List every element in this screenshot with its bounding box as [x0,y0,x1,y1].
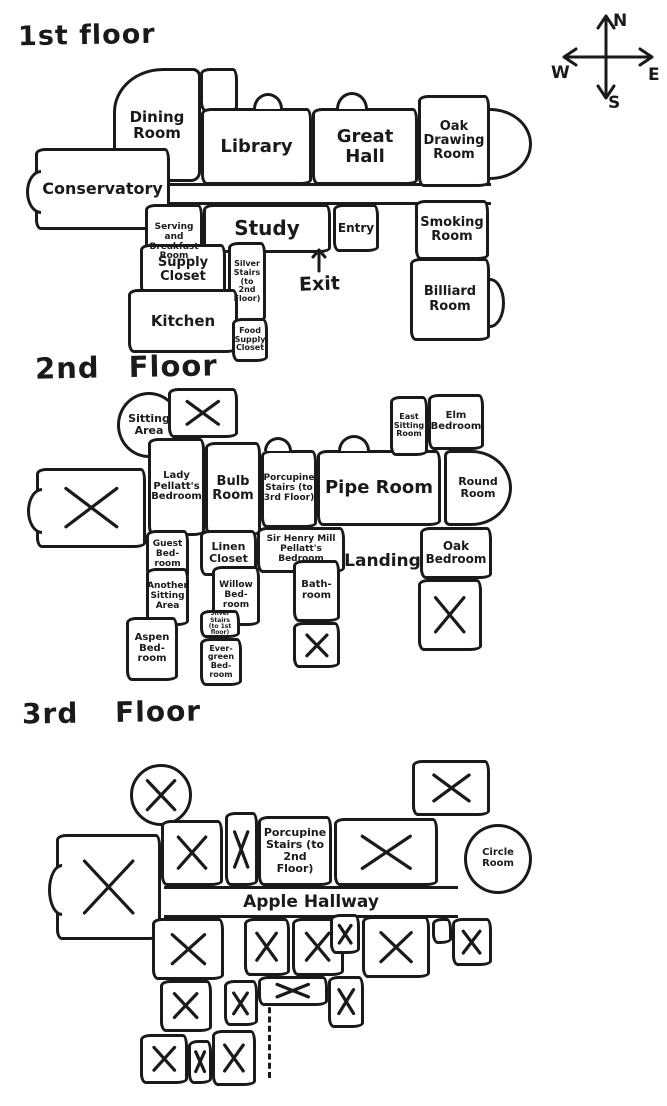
crossed-out-x-mark [302,928,333,965]
room-label: Lady Pellatt's Bedroom [149,470,204,504]
bay-window [27,488,42,534]
room-label: Elm Bedroom [429,410,484,434]
crossed-out-x-mark [194,1048,206,1075]
compass-rose-icon: N E S W [550,8,665,110]
room-unlabeled [188,1040,212,1084]
crossed-out-x-mark [353,830,420,875]
room-label: Smoking Room [418,215,486,245]
compass-east-label: E [648,65,660,85]
room-label: Sitting Area [120,412,178,438]
crossed-out-x-mark [303,631,331,660]
room-smoking-room: Smoking Room [415,200,489,260]
bay-window [48,864,62,916]
room-label: Entry [336,221,376,236]
compass-north-label: N [613,11,627,31]
room-unlabeled [328,976,364,1028]
room-unlabeled [161,820,223,886]
room-label: Billiard Room [413,284,487,314]
room-unlabeled [362,916,430,978]
room-label: Aspen Bed-room [129,632,175,666]
exit-note: Exit [294,247,344,295]
crossed-out-x-mark [75,851,142,923]
room-label: Conservatory [40,179,165,198]
room-oak-drawing-room: Oak Drawing Room [418,95,490,187]
room-label: Pipe Room [323,477,435,498]
room-unlabeled [412,760,490,816]
room-porcupine-stairs-to-2nd-floor: Porcupine Stairs (to 2nd Floor) [258,816,332,886]
room-aspen-bed-room: Aspen Bed-room [126,617,178,681]
room-label: Oak Bedroom [423,539,489,567]
room-label: Supply Closet [143,255,223,285]
room-oak-bedroom: Oak Bedroom [420,527,492,579]
room-unlabeled [200,68,238,112]
room-label: Sir Henry Mill Pellatt's Bedroom [260,534,342,565]
room-ever-green-bed-room: Ever-green Bed-room [200,638,242,686]
room-bulb-room: Bulb Room [205,442,261,536]
room-label: Linen Closet [203,540,254,566]
dashed-wall [268,998,271,1078]
room-food-supply-closet: Food Supply Closet [232,318,268,362]
floor-title-1st: 1st floor [18,19,156,52]
crossed-out-x-mark [253,928,280,965]
compass-west-label: W [551,63,570,83]
exit-label: Exit [298,272,340,295]
room-kitchen: Kitchen [128,289,238,353]
room-label: Guest Bed-room [149,539,186,570]
room-silver-stairs-to-1st-floor: Silver Stairs (to 1st floor) [200,610,240,638]
room-porcupine-stairs-to-3rd-floor: Porcupine Stairs (to 3rd Floor) [261,450,317,528]
room-unlabeled [330,914,360,954]
crossed-out-x-mark [173,831,211,874]
crossed-out-x-mark [430,591,469,639]
room-great-hall: Great Hall [312,108,418,185]
bay-window [338,435,370,451]
bay-window [490,278,505,328]
crossed-out-x-mark [375,927,417,967]
bay-window [253,93,283,109]
crossed-out-x-mark [460,927,483,957]
room-unlabeled [225,812,258,886]
up-arrow-icon [309,247,329,273]
floor-title-3rd: 3rd Floor [22,694,202,730]
crossed-out-x-mark [232,825,250,874]
room-unlabeled [258,976,328,1006]
room-label: Another Sitting Area [145,581,190,612]
crossed-out-x-mark [231,989,250,1018]
room-label: Round Room [447,475,509,501]
room-label: Bath-room [296,579,337,603]
bay-window [490,108,532,180]
room-unlabeled [168,388,238,438]
room-unlabeled [224,980,258,1026]
room-unlabeled [432,918,452,944]
crossed-out-x-mark [142,775,180,815]
room-label: Silver Stairs (to 2nd Floor) [231,259,263,304]
room-landing: Landing [345,527,420,595]
crossed-out-x-mark [181,397,225,429]
room-unlabeled [418,579,482,651]
room-label: Food Supply Closet [233,326,268,354]
bay-window [26,170,41,214]
bay-window [336,92,368,109]
crossed-out-x-mark [337,922,353,946]
floor-plan-map: 1st floor 2nd Floor 3rd Floor N E S W Di… [0,0,667,1106]
room-label: Dining Room [116,108,198,142]
crossed-out-x-mark [166,929,211,969]
room-elm-bedroom: Elm Bedroom [428,394,484,450]
room-unlabeled [130,764,192,826]
room-bath-room: Bath-room [293,560,340,622]
room-label: Study [232,217,302,241]
room-label: Kitchen [149,312,217,330]
room-billiard-room: Billiard Room [410,258,490,341]
floor-title-2nd: 2nd Floor [35,348,218,385]
room-circle-room: Circle Room [464,824,532,894]
room-lady-pellatt-s-bedroom: Lady Pellatt's Bedroom [148,438,205,536]
room-label: Circle Room [467,847,529,871]
compass-south-label: S [608,93,620,110]
crossed-out-x-mark [221,1040,247,1076]
room-label: Silver Stairs (to 1st floor) [203,610,237,638]
room-unlabeled [244,918,290,976]
bay-window [264,437,292,451]
room-unlabeled [334,818,438,886]
room-label: Willow Bed-room [215,580,257,611]
room-label: Great Hall [315,126,415,167]
room-library: Library [201,108,312,185]
room-label: Bulb Room [208,474,258,504]
room-label: Porcupine Stairs (to 3rd Floor) [262,473,317,504]
crossed-out-x-mark [56,481,127,534]
corridor-apple-hallway: Apple Hallway [164,886,458,918]
room-unlabeled [36,468,146,548]
room-label: East Sitting Room [392,412,426,440]
crossed-out-x-mark [170,989,201,1022]
room-unlabeled [160,980,212,1032]
room-unlabeled [212,1030,256,1086]
room-label: Ever-green Bed-room [203,644,239,681]
crossed-out-x-mark [336,985,356,1018]
room-round-room: Round Room [444,450,512,526]
crossed-out-x-mark [150,1043,179,1075]
room-label: Landing [342,551,423,571]
crossed-out-x-mark [271,982,315,999]
room-label: Apple Hallway [241,892,381,912]
room-entry: Entry [333,204,379,252]
crossed-out-x-mark [427,770,476,806]
room-unlabeled [56,834,161,940]
room-label: Library [218,136,294,157]
room-east-sitting-room: East Sitting Room [390,396,428,456]
room-unlabeled [452,918,492,966]
room-unlabeled [152,918,224,980]
room-label: Oak Drawing Room [421,119,487,163]
room-unlabeled [140,1034,188,1084]
room-pipe-room: Pipe Room [317,450,441,526]
room-unlabeled [293,622,340,668]
room-label: Porcupine Stairs (to 2nd Floor) [261,826,329,876]
